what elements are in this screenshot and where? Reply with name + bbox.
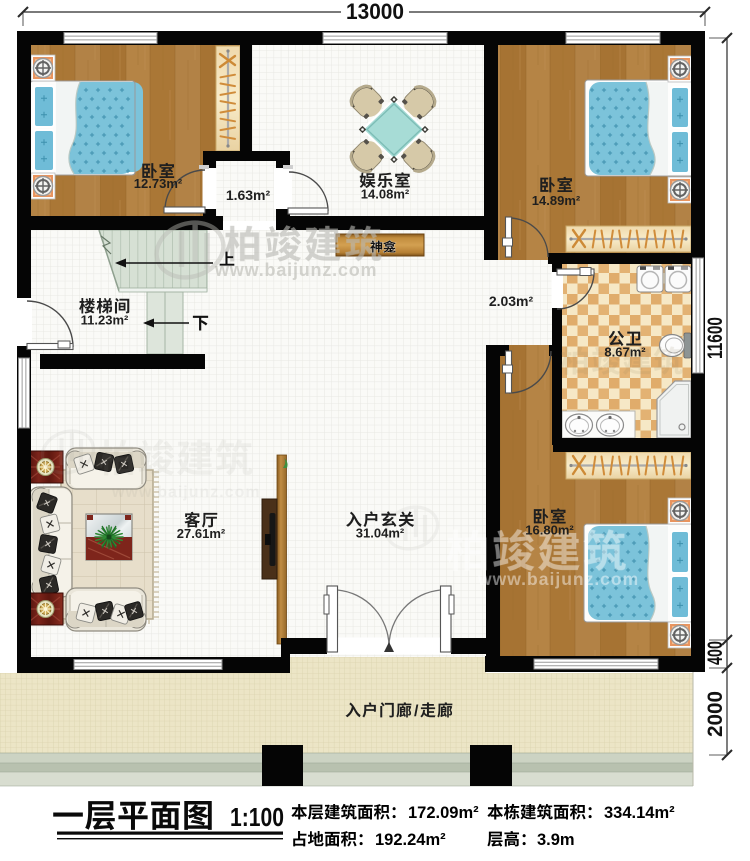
svg-text:12.73m²: 12.73m² — [134, 176, 183, 191]
svg-text:1.63m²: 1.63m² — [226, 187, 271, 203]
svg-text:31.04m²: 31.04m² — [356, 526, 405, 541]
svg-text:11.23m²: 11.23m² — [81, 313, 129, 328]
svg-text:3.9m: 3.9m — [537, 831, 575, 849]
svg-text:192.24m²: 192.24m² — [375, 831, 446, 849]
svg-text:www.baijunz.com: www.baijunz.com — [214, 260, 377, 280]
svg-text:2.03m²: 2.03m² — [489, 293, 534, 309]
svg-text:14.08m²: 14.08m² — [361, 187, 410, 202]
svg-text:www.baijunz.com: www.baijunz.com — [477, 569, 639, 589]
svg-text:1:100: 1:100 — [230, 802, 284, 832]
svg-text:334.14m²: 334.14m² — [604, 804, 675, 822]
svg-text:16.80m²: 16.80m² — [525, 523, 574, 538]
svg-text:8.67m²: 8.67m² — [604, 345, 646, 360]
svg-text:/: / — [414, 703, 419, 720]
svg-text:11600: 11600 — [704, 317, 727, 359]
svg-text:172.09m²: 172.09m² — [408, 804, 479, 822]
svg-text:www.baijunz.com: www.baijunz.com — [111, 484, 261, 501]
svg-text:14.89m²: 14.89m² — [532, 193, 581, 208]
svg-text:400: 400 — [704, 641, 727, 665]
svg-text:2000: 2000 — [704, 691, 727, 737]
svg-text:13000: 13000 — [346, 0, 404, 24]
svg-text:27.61m²: 27.61m² — [177, 526, 226, 541]
